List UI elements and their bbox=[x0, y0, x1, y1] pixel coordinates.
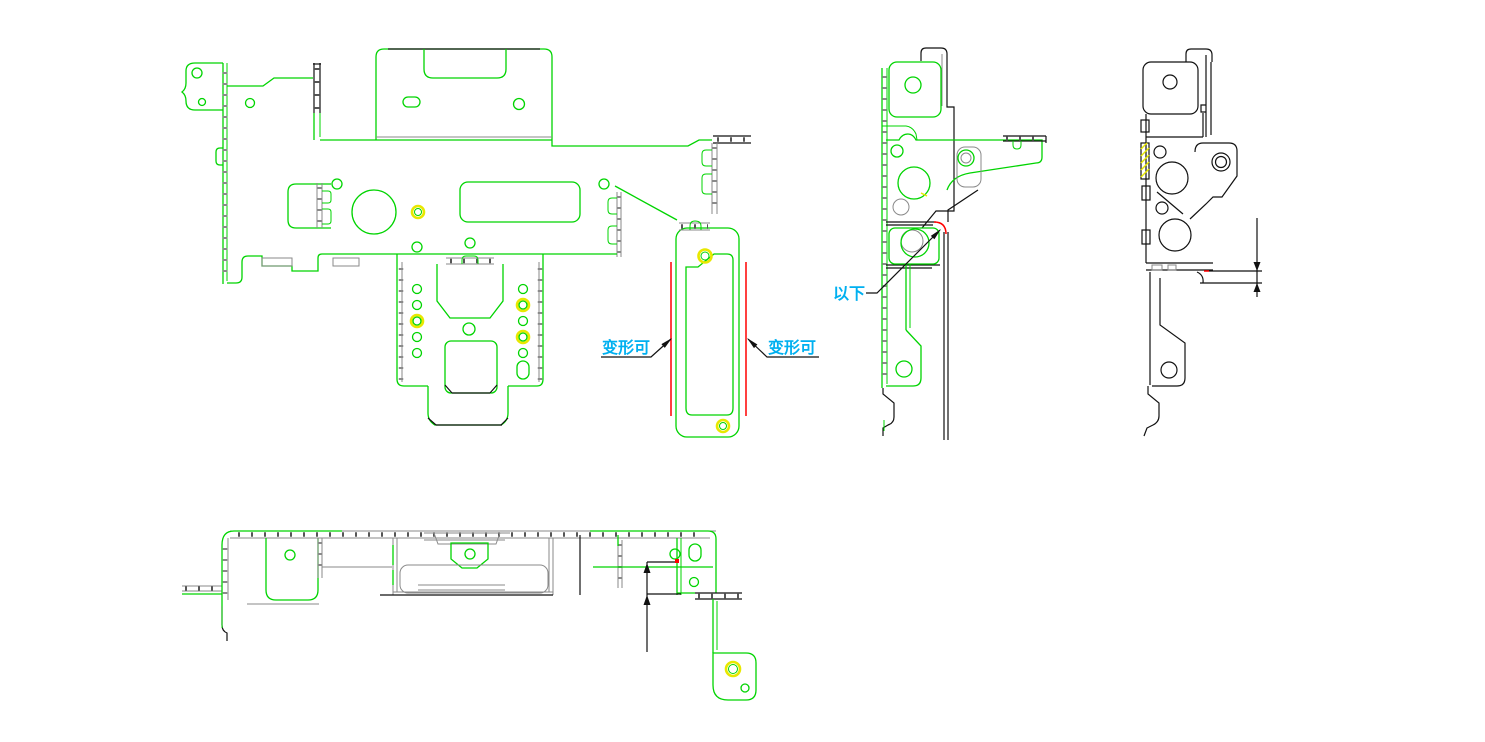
side-view-black bbox=[1141, 49, 1262, 436]
cad-drawing-page: 变形可 变形可 bbox=[0, 0, 1485, 742]
dim-ref-mark bbox=[675, 559, 679, 563]
dim-arrow-up-2 bbox=[644, 595, 651, 605]
deform-note-right: 变形可 bbox=[747, 338, 819, 357]
dimension-bottom bbox=[644, 559, 682, 652]
side-view-overlay: 以下 bbox=[833, 48, 1046, 440]
dim-arrow-up bbox=[1254, 283, 1261, 292]
flat-pattern-view bbox=[182, 49, 751, 425]
drawing-canvas: 变形可 变形可 bbox=[0, 0, 1485, 742]
dim-arrow-down bbox=[1254, 262, 1261, 271]
below-note-label: 以下 bbox=[833, 284, 865, 303]
deform-note-left: 变形可 bbox=[601, 338, 672, 357]
dim-arrow-up-1 bbox=[644, 563, 651, 573]
deform-note-left-label: 变形可 bbox=[602, 338, 650, 357]
hatch-highlight bbox=[1141, 143, 1149, 179]
dimension-right bbox=[1200, 218, 1262, 297]
slide-plate-view: 变形可 变形可 bbox=[601, 221, 819, 437]
bottom-view bbox=[182, 531, 756, 700]
deform-note-right-label: 变形可 bbox=[768, 338, 816, 357]
